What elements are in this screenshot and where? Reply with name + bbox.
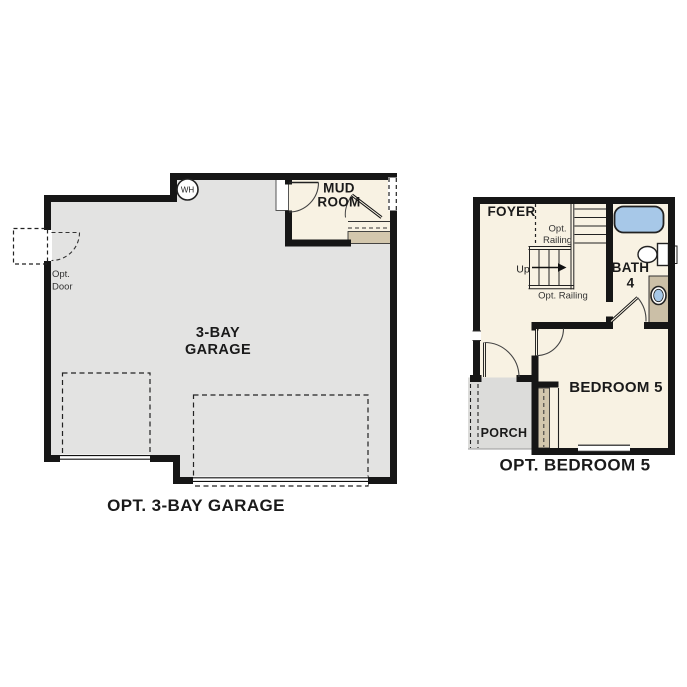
bathtub bbox=[615, 207, 664, 233]
left-wall-notch bbox=[473, 331, 482, 341]
floorplan-page: WH 3-BAY GARAGE MUD ROOM Opt. Door OPT. … bbox=[0, 0, 687, 687]
opt-door-label-line2: Door bbox=[52, 282, 73, 293]
water-heater-label: WH bbox=[181, 185, 195, 194]
bath-label-line1: BATH bbox=[612, 260, 650, 275]
garage-label-line2: GARAGE bbox=[185, 342, 251, 358]
bedroom5-plan: FOYER Opt. Railing Up Opt. Railing BATH … bbox=[468, 201, 677, 475]
up-label: Up bbox=[516, 264, 530, 276]
garage-door-2 bbox=[193, 477, 368, 486]
bedroom5-plan-caption: OPT. BEDROOM 5 bbox=[499, 456, 650, 475]
garage-label-line1: 3-BAY bbox=[196, 325, 240, 341]
mudroom-side-opening bbox=[388, 178, 398, 211]
opt-railing-upper-line1: Opt. bbox=[549, 224, 567, 235]
porch-label: PORCH bbox=[481, 426, 528, 440]
opt-railing-upper-line2: Railing bbox=[543, 235, 572, 246]
garage-plan: WH 3-BAY GARAGE MUD ROOM Opt. Door OPT. … bbox=[14, 173, 398, 515]
water-heater: WH bbox=[177, 179, 198, 200]
mudroom-label-line1: MUD bbox=[323, 181, 355, 196]
foyer-label: FOYER bbox=[488, 204, 536, 219]
garage-door-1 bbox=[60, 455, 150, 464]
sink-basin bbox=[654, 289, 664, 301]
mudroom-label-line2: ROOM bbox=[317, 195, 360, 210]
bedroom-label: BEDROOM 5 bbox=[569, 379, 663, 396]
bedroom-window bbox=[578, 445, 630, 453]
vanity bbox=[649, 276, 669, 323]
opt-door-label-line1: Opt. bbox=[52, 269, 70, 280]
bath-label-line2: 4 bbox=[627, 276, 635, 291]
floorplan-canvas: WH 3-BAY GARAGE MUD ROOM Opt. Door OPT. … bbox=[0, 0, 687, 687]
opt-door-dashed-stoop bbox=[14, 229, 48, 265]
opt-railing-lower-label: Opt. Railing bbox=[538, 291, 588, 302]
garage-plan-caption: OPT. 3-BAY GARAGE bbox=[107, 496, 285, 515]
